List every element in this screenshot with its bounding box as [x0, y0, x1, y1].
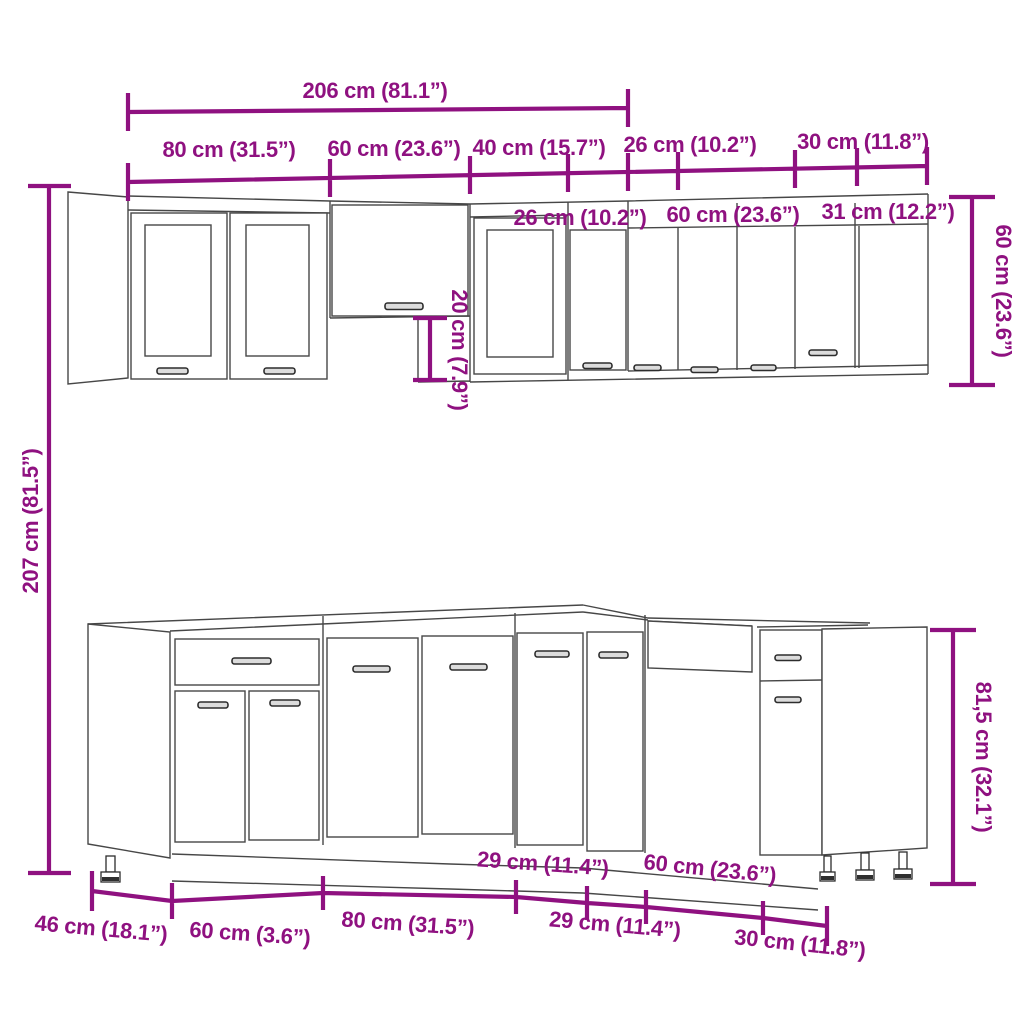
door-handle [353, 666, 390, 672]
dim-label-top-total: 206 cm (81.1”) [303, 78, 448, 103]
dim-label-base-height: 81,5 cm (32.1”) [971, 682, 996, 833]
dim-label-wall-right-31: 31 cm (12.2”) [821, 199, 954, 224]
door [175, 691, 245, 842]
door [517, 633, 583, 845]
glass-door [230, 213, 327, 379]
diagram-canvas: 206 cm (81.1”) 80 cm (31.5”) 60 cm (23.6… [0, 0, 1024, 1024]
dim-label-base-width-29-lower: 29 cm (11.4”) [548, 906, 682, 942]
door-handle [583, 363, 612, 369]
wall-top-edge [128, 194, 928, 204]
door-handle [450, 664, 487, 670]
cabinet-front [760, 630, 822, 855]
door-handle [264, 368, 295, 374]
base-cabinet-80 [323, 616, 513, 845]
base-corner-panel [648, 621, 752, 672]
drawer-handle [775, 655, 801, 661]
door-handle [634, 365, 661, 371]
drawer-handle [232, 658, 271, 664]
dim-label-wall-width-40: 40 cm (15.7”) [472, 135, 605, 160]
dim-label-wall-width-30: 30 cm (11.8”) [797, 129, 929, 154]
door-handle [535, 651, 569, 657]
adjustable-foot [101, 856, 120, 882]
dim-label-base-depth: 46 cm (18.1”) [34, 910, 169, 947]
dim-label-wall-width-80: 80 cm (31.5”) [162, 137, 295, 162]
base-corner-doors [515, 613, 645, 853]
door [570, 230, 626, 370]
glass-door [474, 218, 566, 374]
base-cabinet-30-drawer [760, 627, 927, 855]
dim-label-total-height: 207 cm (81.5”) [18, 449, 43, 594]
door-handle [385, 303, 423, 310]
dim-label-wall-width-26: 26 cm (10.2”) [623, 132, 756, 157]
wall-side-panel-left [68, 192, 128, 384]
dim-line-wall-height [949, 197, 995, 385]
adjustable-foot [820, 856, 835, 881]
dim-label-wall-right-60: 60 cm (23.6”) [666, 202, 799, 227]
countertop-corner-edges [583, 605, 870, 627]
adjustable-foot [856, 853, 874, 880]
wall-cabinet-80-glass [131, 213, 327, 379]
door-handle [691, 367, 718, 373]
dim-label-hood-gap: 20 cm (7.9”) [447, 289, 472, 410]
dim-label-base-width-80: 80 cm (31.5”) [341, 906, 475, 940]
adjustable-foot [894, 852, 912, 879]
door [587, 632, 643, 851]
door-handle [198, 702, 228, 708]
dim-label-base-width-60: 60 cm (3.6”) [189, 917, 312, 950]
door-handle [809, 350, 837, 356]
door-handle [270, 700, 300, 706]
dim-label-base-width-30: 30 cm (11.8”) [733, 924, 867, 963]
base-side-panel-right [822, 627, 927, 855]
base-side-panel-left [88, 624, 170, 858]
dim-label-wall-height: 60 cm (23.6”) [991, 224, 1016, 357]
base-cabinet-60-drawer [175, 639, 319, 842]
door-handle [157, 368, 188, 374]
drawer-handle [775, 697, 801, 703]
door-handle [751, 365, 776, 371]
door-handle [599, 652, 628, 658]
door [249, 691, 319, 840]
dim-label-base-width-60-upper: 60 cm (23.6”) [642, 849, 777, 888]
dim-label-wall-right-26: 26 cm (10.2”) [513, 205, 646, 230]
kitchen-dimension-diagram: 206 cm (81.1”) 80 cm (31.5”) 60 cm (23.6… [0, 0, 1024, 1024]
dim-label-wall-width-60: 60 cm (23.6”) [327, 136, 460, 161]
drawer-divider [760, 680, 822, 681]
dim-line-base-height [930, 630, 976, 884]
countertop-edges [88, 605, 583, 631]
